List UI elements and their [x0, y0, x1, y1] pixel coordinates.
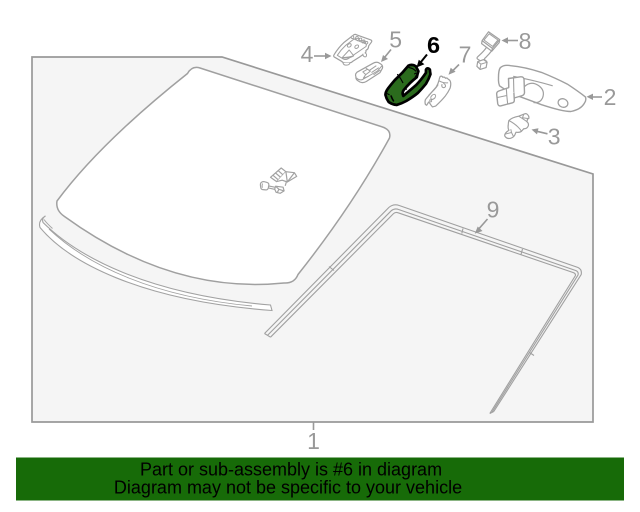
svg-text:Diagram may not be specific to: Diagram may not be specific to your vehi…	[114, 478, 462, 498]
svg-text:9: 9	[487, 196, 500, 222]
svg-text:4: 4	[301, 41, 314, 67]
svg-text:5: 5	[389, 26, 402, 52]
svg-text:6: 6	[427, 32, 440, 58]
svg-text:7: 7	[459, 41, 472, 67]
svg-text:8: 8	[519, 28, 532, 54]
svg-text:Part or sub-assembly is #6 in: Part or sub-assembly is #6 in diagram	[140, 460, 442, 480]
svg-text:2: 2	[604, 84, 617, 110]
svg-text:3: 3	[548, 124, 561, 150]
svg-text:1: 1	[307, 428, 320, 454]
